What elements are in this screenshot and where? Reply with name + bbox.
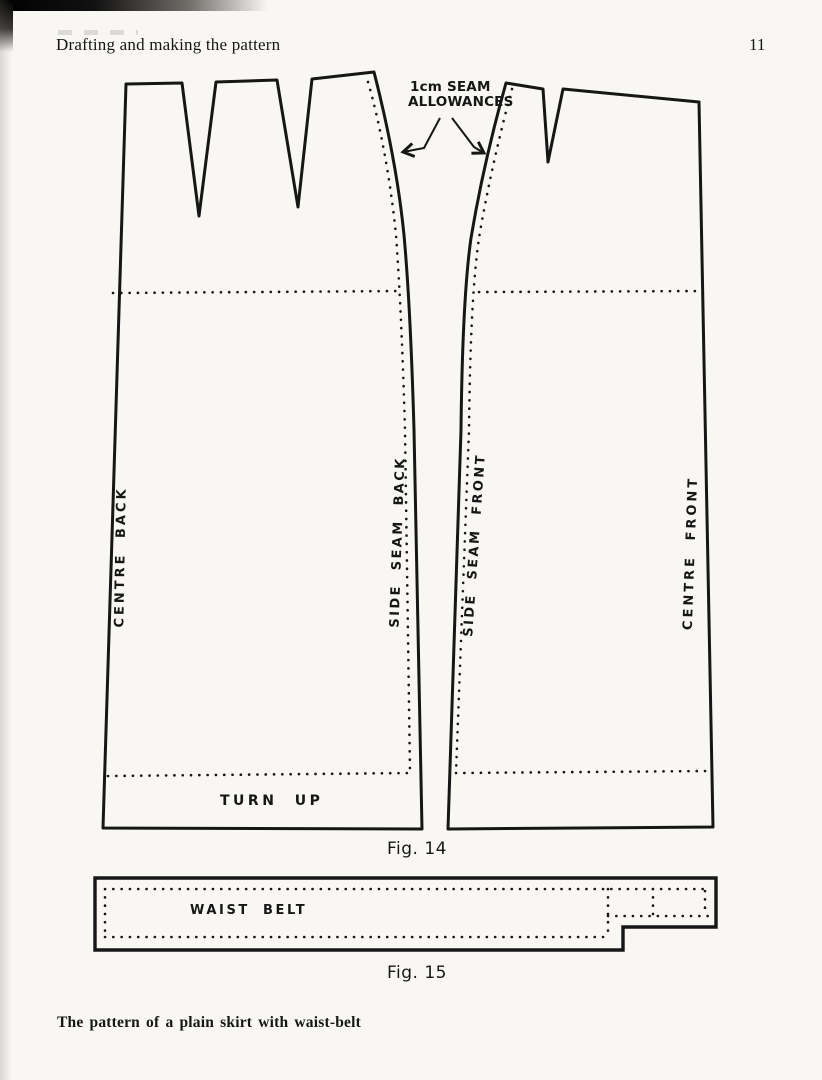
hip-line-front-dotted — [479, 291, 701, 292]
seam-allowance-arrow-right — [452, 118, 484, 153]
hip-line-back-dotted — [113, 291, 399, 293]
seam-allowance-note-line2: ALLOWANCES — [408, 95, 514, 110]
side-seam-front-dotted-line — [456, 89, 512, 772]
seam-allowance-note: 1cm SEAM ALLOWANCES — [408, 80, 514, 110]
turn-up-label: TURN UP — [220, 793, 323, 809]
fig-15-caption: Fig. 15 — [387, 963, 447, 983]
side-seam-back-dotted-line — [368, 82, 410, 773]
hemline-front-dotted — [456, 771, 709, 773]
hemline-back-dotted — [108, 773, 410, 776]
seam-allowance-note-line1: 1cm SEAM — [408, 80, 514, 95]
fig-14-caption: Fig. 14 — [387, 839, 447, 859]
waist-belt-label: WAIST BELT — [190, 903, 307, 918]
back-panel-outline — [103, 72, 422, 829]
seam-allowance-arrow-left — [403, 118, 440, 152]
centre-back-label: CENTRE BACK — [112, 486, 129, 627]
footer-caption: The pattern of a plain skirt with waist-… — [57, 1014, 361, 1032]
scanned-book-page: Drafting and making the pattern 11 1cm S… — [0, 0, 822, 1080]
